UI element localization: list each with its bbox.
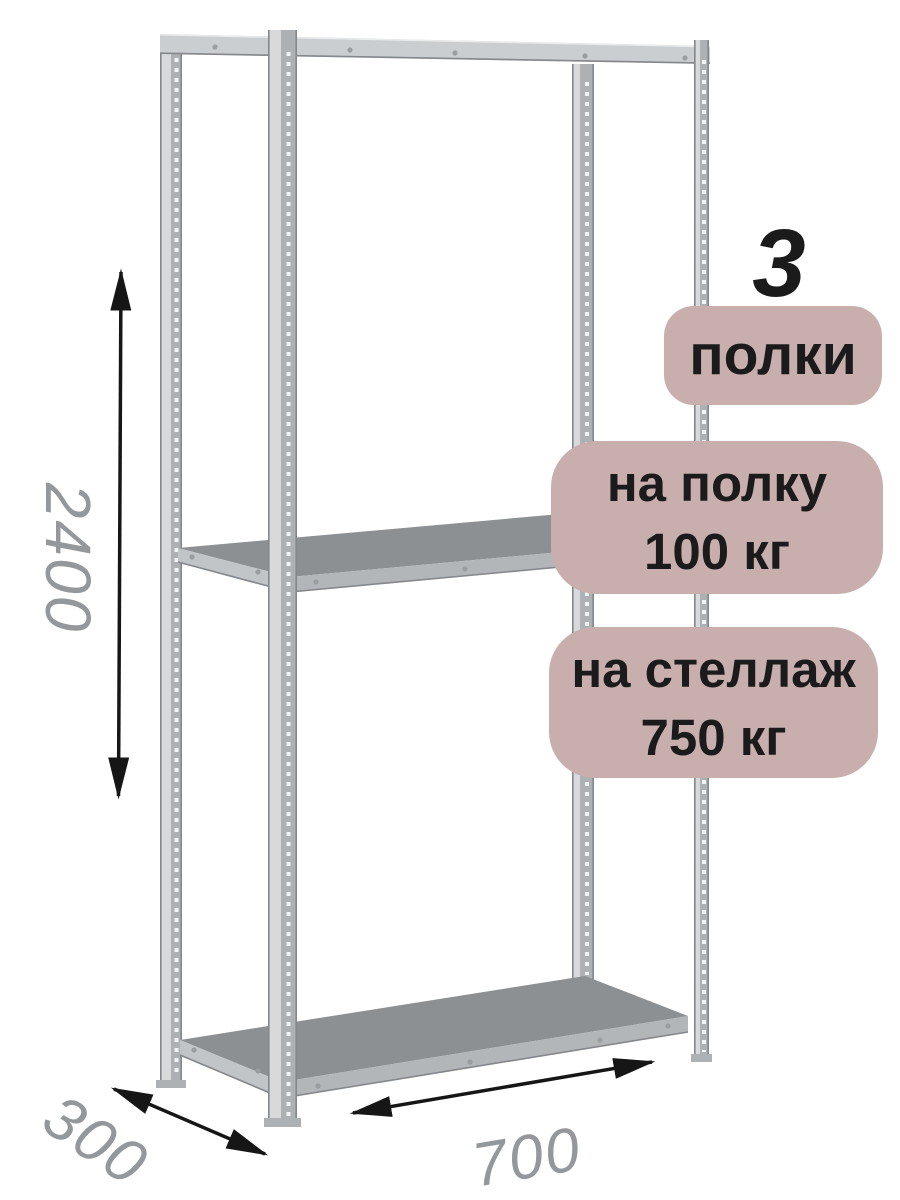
height-dimension-label: 2400 [33, 473, 103, 643]
per-shelf-load-line2: 100 кг [551, 518, 883, 586]
per-rack-load-line2: 750 кг [549, 704, 878, 772]
per-shelf-load-badge: на полку 100 кг [551, 441, 883, 594]
rack-post-front-left [264, 30, 301, 1127]
per-rack-load-text: на стеллаж 750 кг [549, 627, 878, 772]
shelving-rack-illustration [0, 0, 900, 1200]
shelf-count-badge: полки [664, 306, 882, 405]
top-frame-beam [160, 34, 710, 64]
per-shelf-load-line1: на полку [551, 450, 883, 518]
product-image: 2400 300 700 3 полки на полку 100 кг на … [0, 0, 900, 1200]
bottom-shelf [180, 976, 688, 1098]
height-dimension-arrow [119, 272, 122, 796]
per-shelf-load-text: на полку 100 кг [551, 441, 883, 586]
per-rack-load-badge: на стеллаж 750 кг [549, 627, 878, 778]
per-rack-load-line1: на стеллаж [549, 636, 878, 704]
shelf-count-number: 3 [729, 212, 829, 316]
shelf-count-badge-label: полки [689, 323, 857, 387]
